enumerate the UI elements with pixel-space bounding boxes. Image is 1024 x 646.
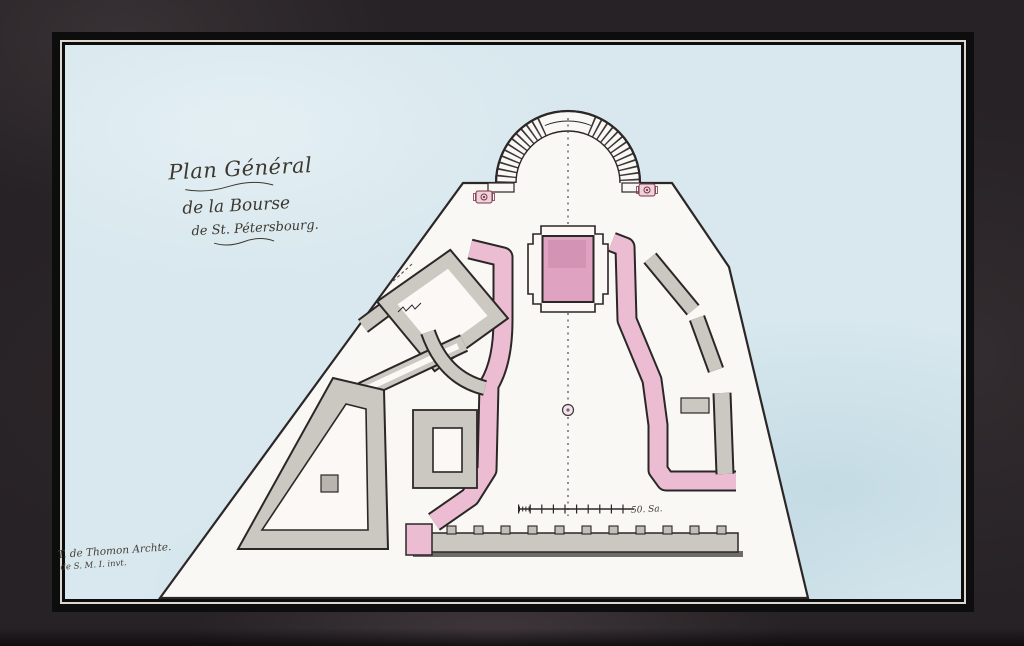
bourse-building [528, 226, 608, 312]
quay-pink-pavilion [406, 524, 432, 555]
scale-label: 50. Sa. [631, 504, 663, 516]
square-courtyard-building [413, 410, 477, 488]
buttress [555, 526, 564, 534]
buttress [447, 526, 456, 534]
title-cartouche: Plan Général de la Bourse de St. Pétersb… [168, 152, 342, 251]
small-pavilion [321, 475, 338, 492]
title-line-2: de la Bourse [182, 191, 341, 219]
buttress [717, 526, 726, 534]
buttress [663, 526, 672, 534]
east-range-building-3 [722, 393, 725, 474]
square-inner-court [433, 428, 462, 472]
buttress [501, 526, 510, 534]
quay-spring-step-left [488, 183, 514, 192]
buttress [609, 526, 618, 534]
quay-wall-bar [408, 533, 738, 552]
buttress [582, 526, 591, 534]
buttress [528, 526, 537, 534]
bourse-hall-wash [548, 240, 586, 268]
buttress [690, 526, 699, 534]
axis-marker [563, 405, 574, 416]
rostral-column-marker-left [474, 191, 495, 203]
east-small-pavilion [681, 398, 709, 413]
framed-plan-artwork: Plan Général de la Bourse de St. Pétersb… [0, 0, 1024, 646]
rostral-column-marker-right [637, 184, 658, 196]
buttress [474, 526, 483, 534]
buttress [636, 526, 645, 534]
